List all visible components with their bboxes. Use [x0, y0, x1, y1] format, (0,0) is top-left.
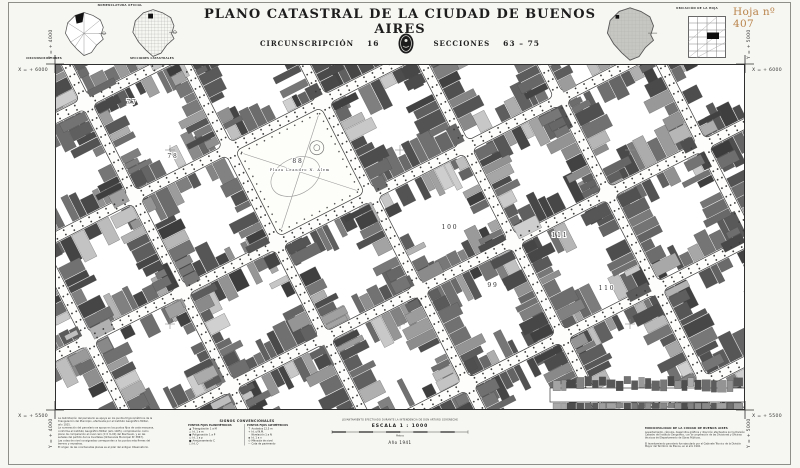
svg-text:X = + 6000: X = + 6000	[18, 67, 48, 73]
legend-symbol-icon: □	[188, 443, 193, 446]
hoja-number: Hoja nº 407	[733, 6, 795, 30]
nomenclatura-title-wrap: NOMENCLATURA OFICIAL	[70, 4, 170, 7]
municipality-title: MUNICIPALIDAD DE LA CIUDAD DE BUENOS AIR…	[645, 427, 790, 430]
legend-row: □Id. C¹	[188, 443, 244, 446]
legend-row: —Cota de pavimento	[247, 443, 303, 446]
municipality-block: MUNICIPALIDAD DE LA CIUDAD DE BUENOS AIR…	[645, 427, 790, 449]
ubicacion-city-map	[601, 6, 659, 62]
survey-notes: La delimitación del parcelario se apoya …	[58, 417, 188, 449]
svg-text:Plaza Leandro N. Alem: Plaza Leandro N. Alem	[270, 168, 330, 172]
ubicacion-title-wrap: UBICACIÓN DE LA HOJA	[657, 7, 737, 10]
svg-text:Y = + 5000: Y = + 5000	[746, 29, 752, 60]
legend-column: PUNTOS FIJOS ALTIMÉTRICOSTAcotados 12.5 …	[244, 424, 303, 446]
svg-text:88: 88	[292, 158, 303, 165]
svg-text:X = + 6000: X = + 6000	[752, 67, 782, 73]
current-hoja-cell	[707, 33, 719, 40]
city-crest-emblem	[398, 33, 414, 54]
legend-block: SIGNOS CONVENCIONALES PUNTOS FIJOS PLANI…	[188, 419, 306, 446]
note-line: El origen de las coordenadas planas es e…	[58, 446, 188, 449]
highlighted-seccion	[148, 14, 153, 19]
legend-symbol-icon: —	[247, 443, 252, 446]
svg-text:77: 77	[126, 99, 137, 106]
legend-columns: PUNTOS FIJOS PLANIMÉTRICOS▲Triangulación…	[188, 424, 306, 446]
ubicacion-title: UBICACIÓN DE LA HOJA	[657, 7, 737, 10]
municipality-line: Mayor del Territorio de Planos, en el añ…	[645, 446, 790, 449]
cadastral-sheet: NOMENCLATURA OFICIAL CIRCUNSCRIPCIONES S…	[0, 0, 800, 468]
svg-text:Y = + 4000: Y = + 4000	[48, 29, 54, 60]
notes-block: La delimitación del parcelario se apoya …	[58, 417, 188, 449]
secciones-inset-map	[122, 8, 184, 58]
nomenclatura-title: NOMENCLATURA OFICIAL	[70, 4, 170, 7]
municipality-notes: Levantamiento, cálculos, desarrollos grá…	[645, 431, 790, 448]
hoja-location-dot	[616, 15, 620, 19]
circunscripciones-caption: CIRCUNSCRIPCIONES	[4, 57, 84, 60]
circunscripciones-inset-map	[55, 11, 113, 57]
circunscripcion-value: 16	[367, 39, 379, 48]
legend-title: SIGNOS CONVENCIONALES	[188, 419, 306, 423]
svg-text:Y = + 4000: Y = + 4000	[48, 418, 54, 449]
hoja-grid-inset	[688, 16, 726, 58]
svg-text:111: 111	[552, 232, 569, 239]
svg-text:X = + 5500: X = + 5500	[18, 413, 48, 419]
map-canvas: X = + 6000X = + 6000X = + 5500X = + 5500…	[55, 64, 745, 410]
survey-caption: LEVANTAMIENTO EFECTUADO DURANTE LA INTEN…	[325, 419, 475, 422]
svg-text:78: 78	[167, 153, 178, 160]
subtitle-row: CIRCUNSCRIPCIÓN 16 SECCIONES 63 – 75	[225, 33, 575, 54]
circunscripciones-caption-wrap: CIRCUNSCRIPCIONES	[4, 57, 84, 60]
year-label: Año 1941	[325, 441, 475, 446]
scale-block: LEVANTAMIENTO EFECTUADO DURANTE LA INTEN…	[325, 419, 475, 445]
circunscripcion-label: CIRCUNSCRIPCIÓN	[260, 39, 354, 48]
legend-column: PUNTOS FIJOS PLANIMÉTRICOS▲Triangulación…	[188, 424, 244, 446]
secciones-caption-wrap: SECCIONES CATASTRALES	[112, 57, 192, 60]
svg-text:100: 100	[442, 224, 459, 231]
scale-unit: Metros	[325, 435, 475, 438]
secciones-value: 63 – 75	[503, 39, 540, 48]
secciones-caption: SECCIONES CATASTRALES	[112, 57, 192, 60]
scale-label: ESCALA 1 : 1000	[325, 424, 475, 429]
svg-text:110: 110	[599, 285, 616, 292]
secciones-label: SECCIONES	[433, 39, 490, 48]
svg-text:99: 99	[487, 282, 498, 289]
svg-text:X = + 5500: X = + 5500	[752, 413, 782, 419]
